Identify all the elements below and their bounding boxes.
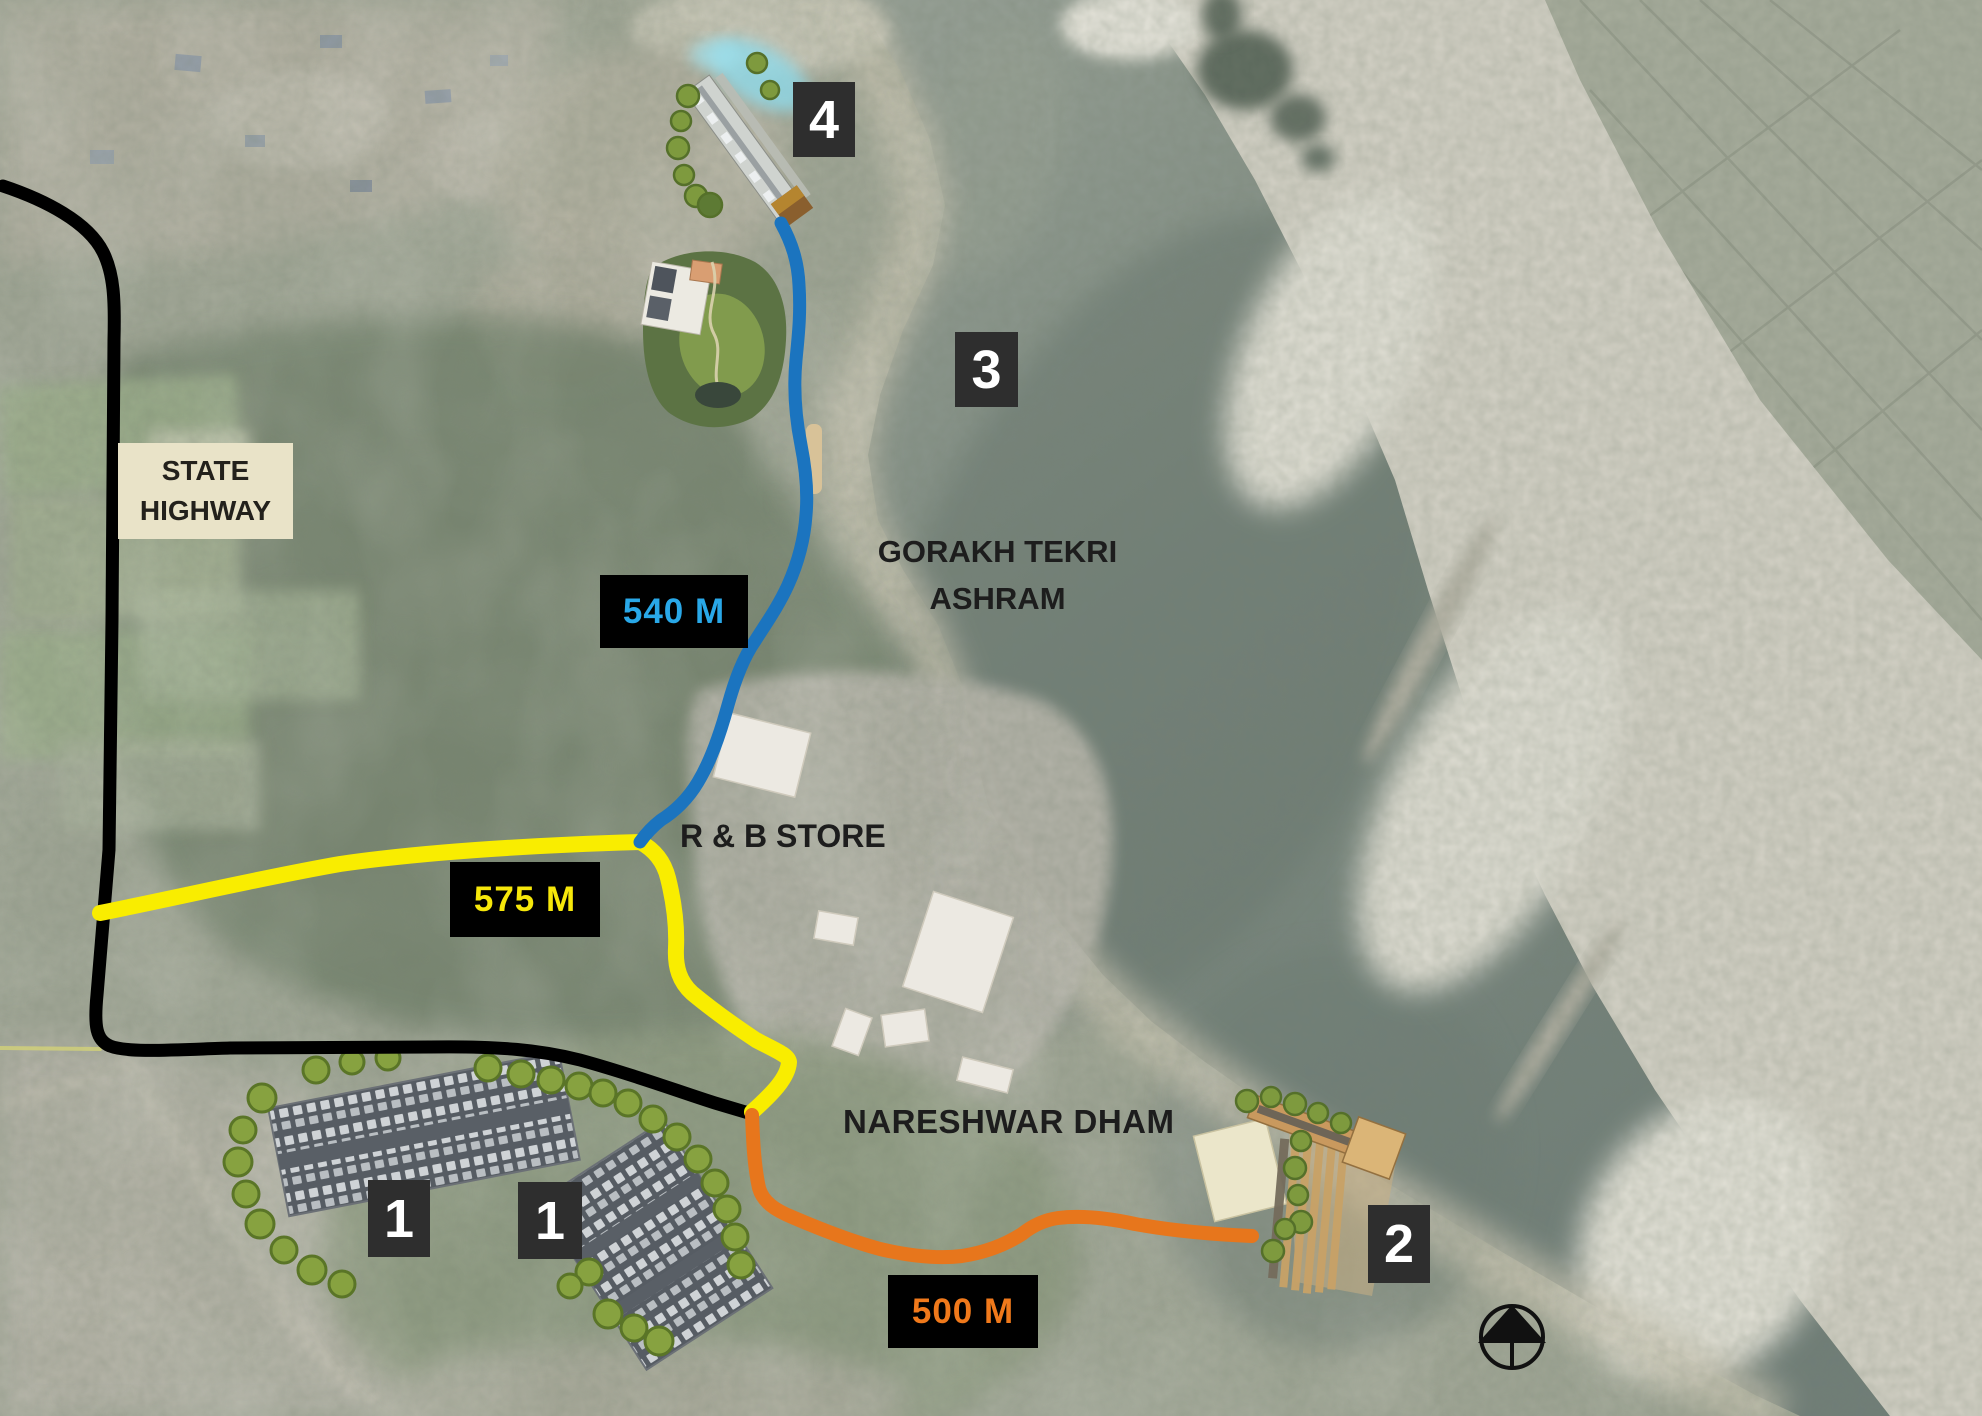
site-marker-1-west: 1 [368,1180,430,1257]
distance-badge-500: 500 M [888,1275,1038,1348]
site-map: STATE HIGHWAY 540 M 575 M 500 M GORAKH T… [0,0,1982,1416]
distance-badge-575: 575 M [450,862,600,937]
site-marker-4: 4 [793,82,855,157]
gorakh-line1: GORAKH TEKRI [845,528,1150,575]
nareshwar-dham-label: NARESHWAR DHAM [843,1103,1175,1141]
state-highway-label: STATE HIGHWAY [118,443,293,539]
rb-store-label: R & B STORE [680,818,886,855]
distance-500-text: 500 M [912,1292,1014,1332]
gorakh-tekri-ashram-label: GORAKH TEKRI ASHRAM [845,528,1150,622]
distance-badge-540: 540 M [600,575,748,648]
satellite-map-canvas [0,0,1982,1416]
north-arrow-icon [1478,1305,1546,1368]
state-highway-line2: HIGHWAY [140,491,271,531]
site-marker-3: 3 [955,332,1018,407]
state-highway-line1: STATE [162,451,250,491]
gorakh-line2: ASHRAM [845,575,1150,622]
site-marker-1-east: 1 [518,1182,582,1259]
site-marker-2: 2 [1368,1205,1430,1283]
distance-575-text: 575 M [474,880,576,920]
distance-540-text: 540 M [623,592,725,632]
